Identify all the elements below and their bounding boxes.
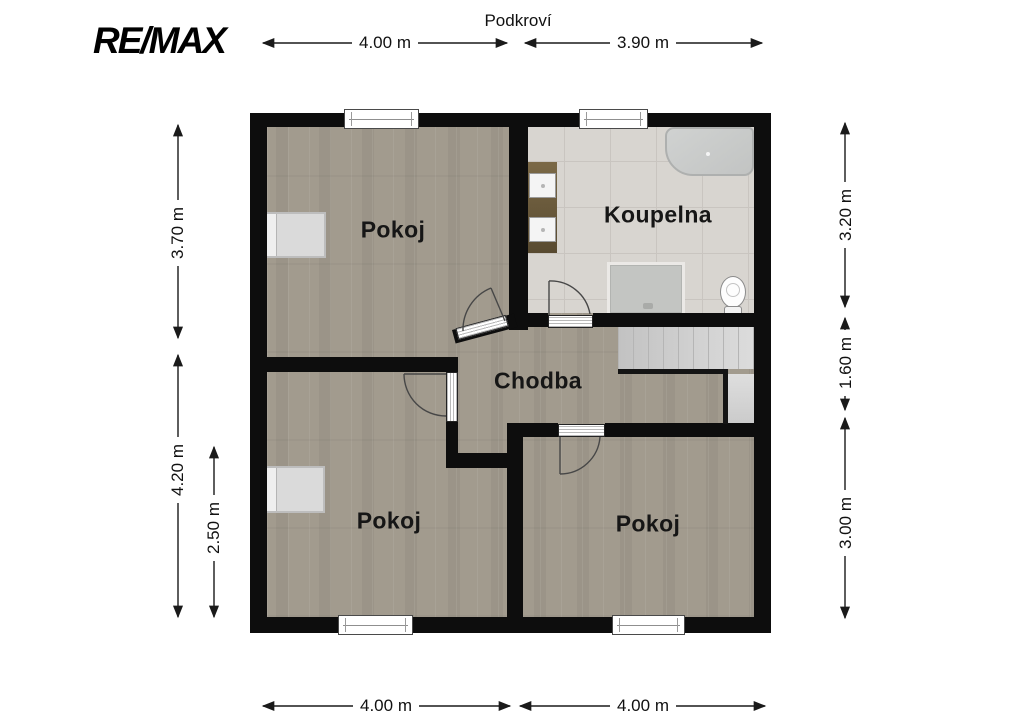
wall-segment — [509, 113, 528, 330]
remax-logo: RE/MAX — [93, 20, 225, 62]
bathtub — [665, 127, 754, 176]
sink — [529, 173, 556, 198]
page-title: Podkroví — [484, 11, 551, 31]
dimension-label: 4.00 m — [610, 696, 676, 716]
toilet — [720, 276, 746, 308]
room-label-top-left: Pokoj — [361, 217, 426, 244]
window — [344, 109, 419, 129]
stair-rail-wall — [723, 374, 728, 424]
window — [612, 615, 685, 635]
wall-segment — [250, 357, 458, 372]
staircase — [618, 327, 754, 369]
dimension-label: 3.00 m — [836, 490, 856, 556]
wall-segment — [507, 423, 558, 437]
dimension-label: 1.60 m — [836, 330, 856, 396]
wall-segment — [446, 422, 458, 453]
dimension-label: 4.00 m — [352, 33, 418, 53]
floorplan-page: RE/MAX Podkroví — [0, 0, 1024, 724]
wall-segment — [250, 113, 267, 633]
bed-headboard — [267, 468, 277, 511]
room-label-bottom-left: Pokoj — [357, 508, 422, 535]
floor-plan: Pokoj Koupelna Chodba Pokoj Pokoj 4.00 m… — [0, 0, 1024, 724]
room-label-bathroom: Koupelna — [604, 202, 712, 229]
dimension-label: 3.70 m — [168, 200, 188, 266]
door — [446, 372, 458, 422]
bed-headboard — [267, 214, 277, 256]
bed — [265, 212, 326, 258]
room-label-hallway: Chodba — [494, 368, 582, 395]
dimension-label: 3.20 m — [836, 182, 856, 248]
shower — [607, 262, 685, 316]
dimension-label: 4.00 m — [353, 696, 419, 716]
window — [338, 615, 413, 635]
bed — [265, 466, 325, 513]
door — [548, 315, 593, 328]
dimension-label: 2.50 m — [204, 495, 224, 561]
wall-segment — [593, 313, 754, 327]
stair-landing — [728, 374, 754, 424]
stair-rail-wall — [618, 369, 728, 374]
wall-segment — [507, 423, 523, 633]
window — [579, 109, 648, 129]
wall-segment — [754, 113, 771, 633]
dimension-label: 4.20 m — [168, 437, 188, 503]
dimension-label: 3.90 m — [610, 33, 676, 53]
wall-segment — [446, 453, 512, 468]
wall-segment — [605, 423, 754, 437]
room-label-bottom-right: Pokoj — [616, 511, 681, 538]
door — [558, 424, 605, 437]
sink — [529, 217, 556, 242]
